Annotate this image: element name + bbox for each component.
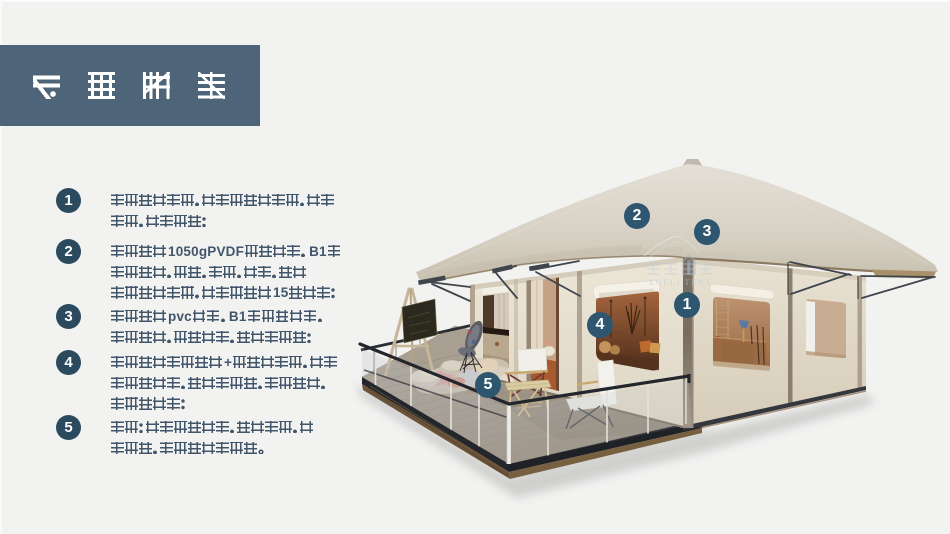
svg-text:XUELI TENT: XUELI TENT — [648, 277, 712, 287]
